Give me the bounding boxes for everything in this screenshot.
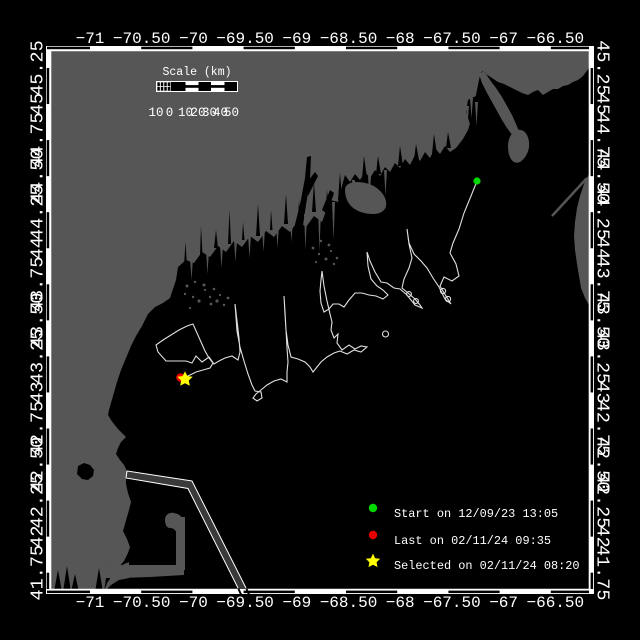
svg-text:45.25: 45.25 xyxy=(592,40,613,96)
svg-text:−67: −67 xyxy=(489,594,518,612)
svg-text:Selected on 02/11/24 08:20: Selected on 02/11/24 08:20 xyxy=(394,559,580,573)
svg-text:−70: −70 xyxy=(179,30,208,48)
svg-text:−68: −68 xyxy=(386,594,415,612)
svg-text:−69: −69 xyxy=(282,594,311,612)
svg-text:−70.50: −70.50 xyxy=(113,30,171,48)
svg-text:−68.50: −68.50 xyxy=(320,594,378,612)
svg-text:41.75: 41.75 xyxy=(28,545,49,601)
svg-text:42.25: 42.25 xyxy=(592,473,613,529)
svg-text:−66.50: −66.50 xyxy=(526,30,584,48)
svg-text:−70.50: −70.50 xyxy=(113,594,171,612)
svg-text:−67.50: −67.50 xyxy=(423,594,481,612)
svg-text:−69.50: −69.50 xyxy=(216,30,274,48)
svg-text:−71: −71 xyxy=(76,594,105,612)
svg-text:−71: −71 xyxy=(76,30,105,48)
svg-text:43.25: 43.25 xyxy=(28,329,49,385)
svg-text:−67.50: −67.50 xyxy=(423,30,481,48)
svg-text:45: 45 xyxy=(28,93,49,115)
svg-text:45.25: 45.25 xyxy=(28,40,49,96)
svg-text:Scale (km): Scale (km) xyxy=(162,66,231,79)
svg-text:42.25: 42.25 xyxy=(28,473,49,529)
svg-text:−70: −70 xyxy=(179,594,208,612)
svg-text:44.25: 44.25 xyxy=(592,184,613,240)
svg-text:0: 0 xyxy=(166,106,174,120)
svg-text:−68.50: −68.50 xyxy=(320,30,378,48)
svg-text:50: 50 xyxy=(224,106,239,120)
svg-text:−69.50: −69.50 xyxy=(216,594,274,612)
svg-text:−68: −68 xyxy=(386,30,415,48)
svg-text:−69: −69 xyxy=(282,30,311,48)
svg-text:43.25: 43.25 xyxy=(592,329,613,385)
svg-text:Last on 02/11/24 09:35: Last on 02/11/24 09:35 xyxy=(394,534,551,548)
svg-text:43: 43 xyxy=(28,381,49,403)
svg-text:44: 44 xyxy=(28,237,49,259)
svg-text:10: 10 xyxy=(148,106,163,120)
svg-text:Start on 12/09/23 13:05: Start on 12/09/23 13:05 xyxy=(394,507,558,521)
svg-text:−66.50: −66.50 xyxy=(526,594,584,612)
svg-text:42: 42 xyxy=(28,526,49,548)
svg-text:−67: −67 xyxy=(489,30,518,48)
svg-text:41.75: 41.75 xyxy=(592,545,613,601)
svg-text:44.25: 44.25 xyxy=(28,184,49,240)
